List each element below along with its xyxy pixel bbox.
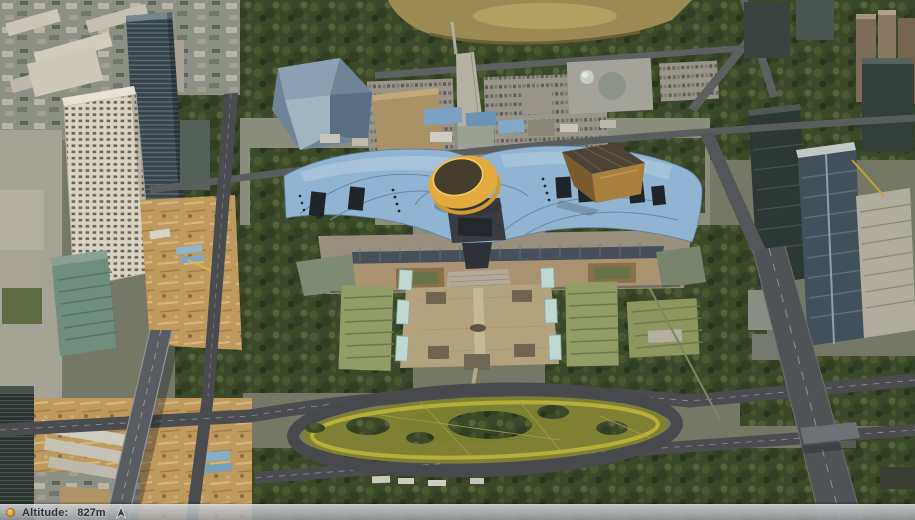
- altitude-value: 827m: [77, 506, 105, 520]
- tower-right-d: [862, 58, 914, 152]
- tower-topright-dark: [744, 2, 790, 58]
- tower-teal-glass: [50, 250, 117, 356]
- plaza-south-gate: [464, 354, 490, 370]
- map-canvas[interactable]: [0, 0, 915, 520]
- status-bar: Altitude: 827m: [0, 504, 915, 520]
- dome-building: [567, 58, 654, 114]
- altitude-label: Altitude:: [22, 506, 68, 520]
- map-viewport: Altitude: 827m: [0, 0, 915, 520]
- orange-dot-icon: [6, 508, 15, 517]
- aerial-scene: [0, 0, 915, 520]
- north-arrow-icon: [115, 506, 127, 519]
